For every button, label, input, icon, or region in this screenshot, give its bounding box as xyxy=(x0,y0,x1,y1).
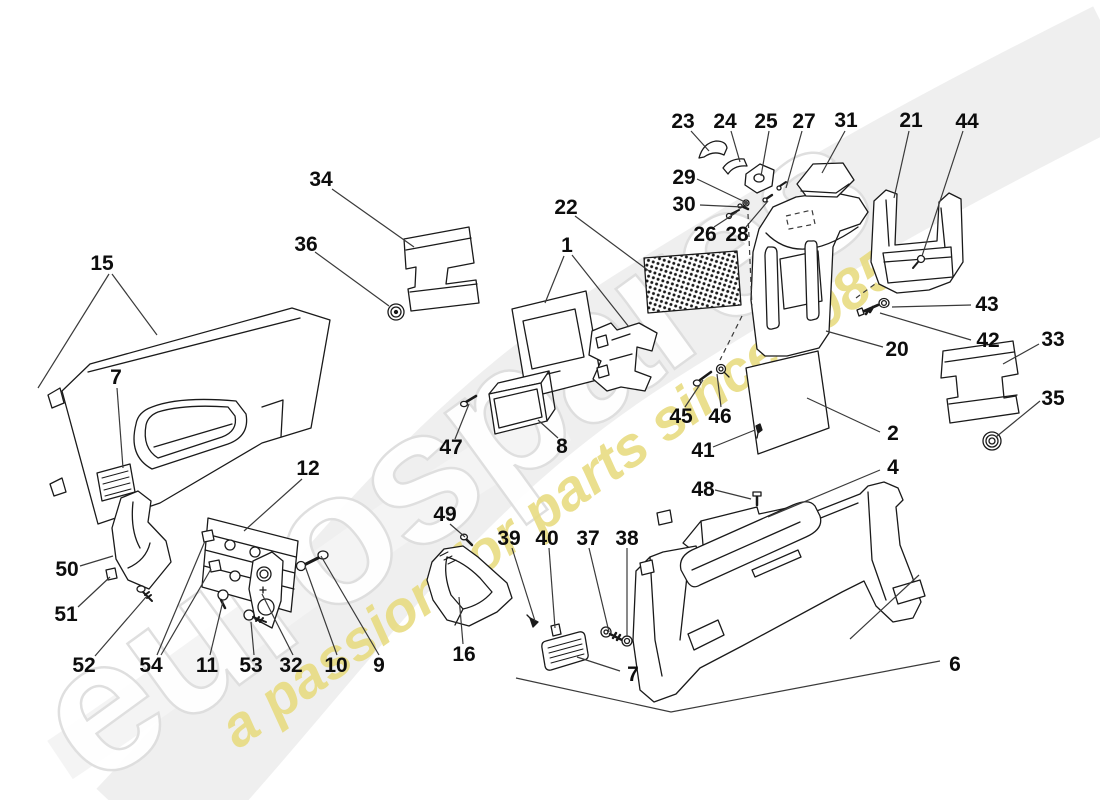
leader-line xyxy=(892,305,971,307)
part-screw-37 xyxy=(601,627,622,640)
part-sill-trim-6 xyxy=(633,482,925,702)
part-end-cap-panel-34 xyxy=(404,227,479,311)
part-clip-40 xyxy=(551,624,561,636)
part-clip-51 xyxy=(106,568,117,580)
leader-line xyxy=(577,657,620,671)
leader-line xyxy=(80,556,113,566)
part-grommet-36 xyxy=(388,304,404,320)
leader-line xyxy=(549,548,555,628)
part-luggage-net-22 xyxy=(644,251,741,313)
leader-line xyxy=(713,430,755,447)
parts-diagram-svg: eurospares a passion for parts since 198… xyxy=(0,0,1100,800)
parts-diagram-canvas: eurospares a passion for parts since 198… xyxy=(0,0,1100,800)
part-screw-48 xyxy=(753,492,761,505)
leader-line xyxy=(880,313,971,340)
part-scuff-plate-7-bottom xyxy=(542,632,588,670)
part-screw-10 xyxy=(297,562,306,571)
leader-line xyxy=(589,548,609,632)
part-clip-39 xyxy=(527,615,538,627)
leader-line xyxy=(315,252,389,306)
part-end-cap-panel-33 xyxy=(941,341,1019,423)
leader-line xyxy=(112,274,157,335)
leader-line xyxy=(332,189,414,247)
leader-line xyxy=(715,490,751,499)
leader-line xyxy=(516,661,940,712)
part-nut-38 xyxy=(622,636,632,646)
